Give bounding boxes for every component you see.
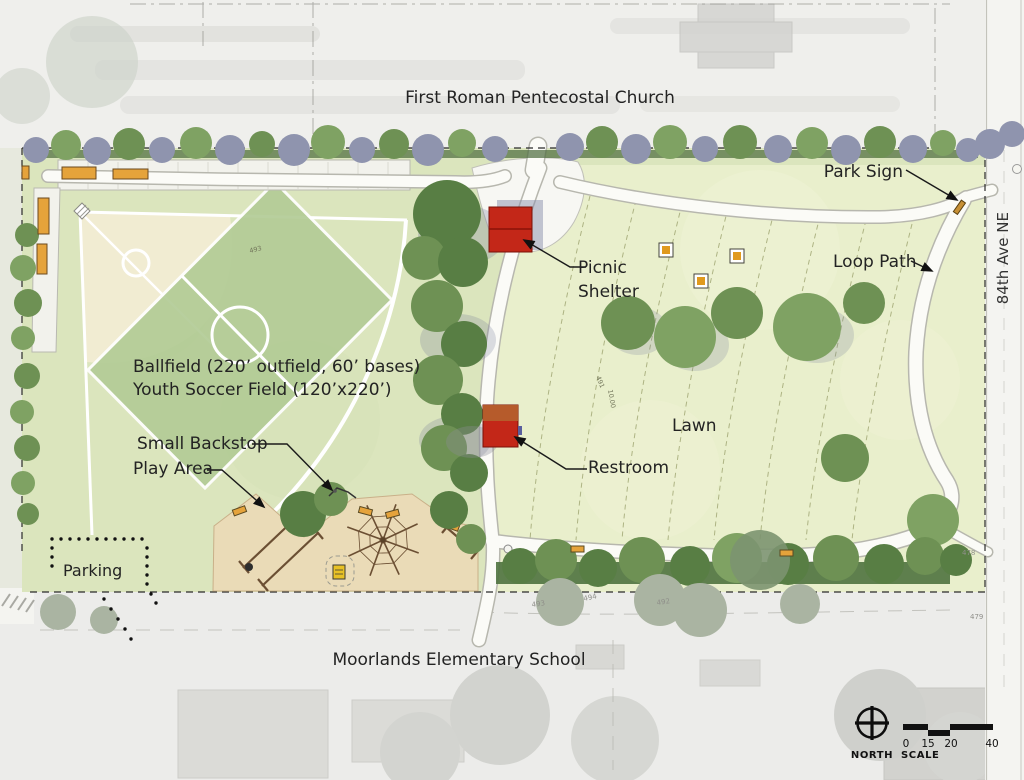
street-84th-ave: [985, 0, 1024, 780]
label-play-area: Play Area: [133, 458, 213, 481]
scale-tick-0: 0: [898, 737, 914, 751]
label-church: First Roman Pentecostal Church: [390, 87, 690, 110]
spring-toy-icon: [333, 565, 345, 579]
label-picnic-shelter-line1: Picnic: [578, 256, 639, 280]
label-small-backstop: Small Backstop: [137, 433, 268, 456]
tire-swing-icon: [245, 563, 253, 571]
contour-label: 478: [962, 549, 975, 557]
label-loop-path: Loop Path: [833, 251, 908, 274]
park-site-plan: 493 491 10.00 493 494 492 478 479 First …: [0, 0, 1024, 780]
contour-label: 479: [970, 613, 983, 621]
label-parking: Parking: [63, 560, 122, 582]
scale-tick-15: 15: [918, 737, 938, 751]
utility-symbol-icon: [1013, 165, 1022, 174]
label-north: NORTH: [850, 749, 894, 763]
picnic-shelter-building: [489, 200, 543, 252]
scale-tick-40: 40: [982, 737, 1002, 751]
label-ballfield: Ballfield (220’ outfield, 60’ bases): [133, 356, 420, 379]
label-school: Moorlands Elementary School: [309, 649, 609, 672]
scale-tick-20: 20: [941, 737, 961, 751]
label-picnic-shelter-line2: Shelter: [578, 280, 639, 304]
label-park-sign: Park Sign: [823, 161, 903, 184]
label-street-84th-ave: 84th Ave NE: [993, 198, 1013, 318]
label-fields: Ballfield (220’ outfield, 60’ bases) You…: [133, 356, 420, 402]
label-restroom: Restroom: [588, 457, 669, 480]
label-lawn: Lawn: [672, 415, 717, 438]
label-picnic-shelter: Picnic Shelter: [578, 256, 639, 304]
label-soccer-field: Youth Soccer Field (120’x220’): [133, 379, 420, 402]
